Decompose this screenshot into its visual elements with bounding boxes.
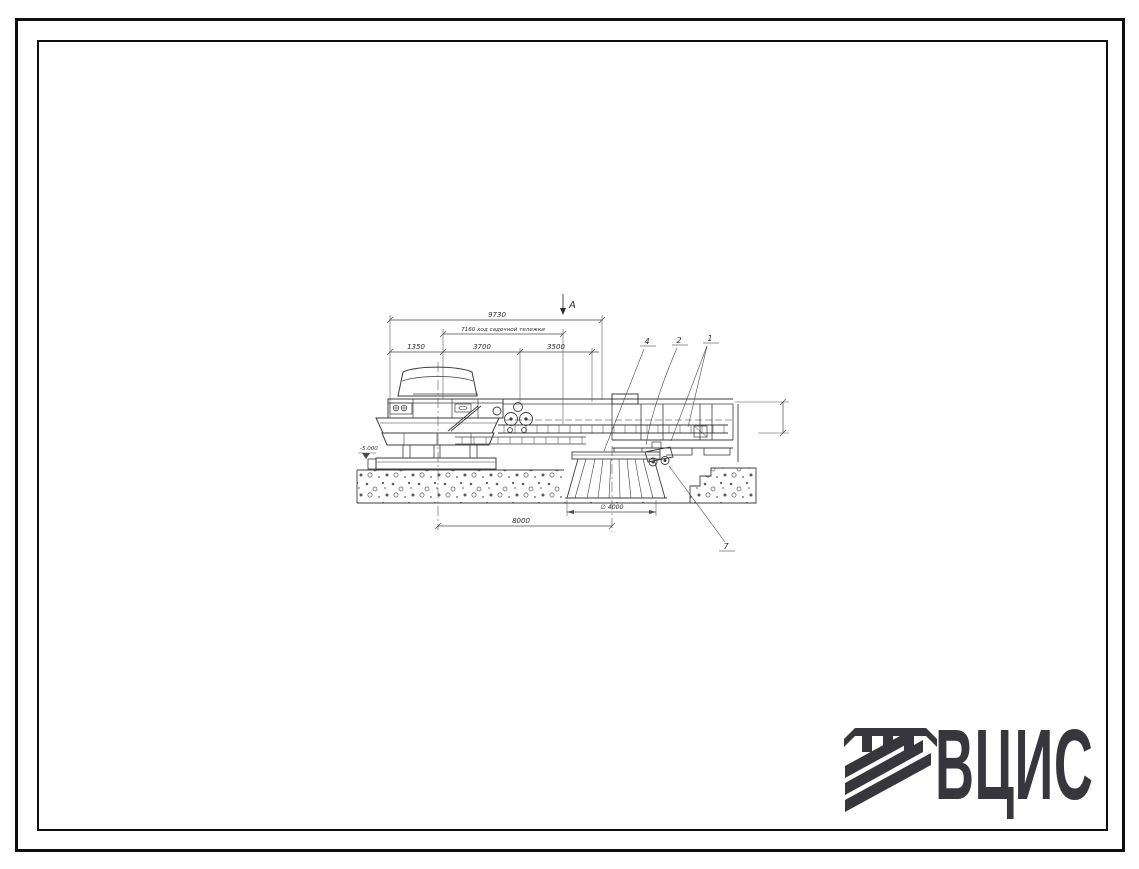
callout-2: 2 [676,336,681,345]
foundation-concrete [357,404,756,503]
machine-body [368,367,503,469]
bridge-rail [388,399,733,444]
dim-seg3-label: 3500 [547,343,565,351]
dim-overall-label: 9730 [488,311,506,319]
section-label: А [568,300,576,311]
dim-seg2-label: 3700 [473,343,491,351]
technical-drawing: 9730 7160 ход садочной тележки 1350 3700… [330,275,810,575]
dim-diameter-label: ∅ 4000 [600,504,623,511]
callout-1: 1 [707,334,712,343]
dim-travel-label: 7160 ход садочной тележки [461,327,545,333]
logo: ВЦИС [843,714,1088,814]
callout-annotations: 4 2 1 7 [604,334,735,551]
pedestal-column [564,452,667,499]
callout-4: 4 [644,337,649,346]
scanned-drawing-page: { "page": { "frame_color": "#0e0e0e", "b… [0,0,1139,869]
elevation-label: -5.000 [360,446,378,452]
logo-text: ВЦИС [935,717,1097,813]
logo-emblem-icon [843,716,939,812]
roller-assembly [448,403,533,433]
callout-7: 7 [723,542,729,551]
dim-span-label: 8000 [512,517,530,525]
dim-seg1-label: 1350 [407,343,425,351]
